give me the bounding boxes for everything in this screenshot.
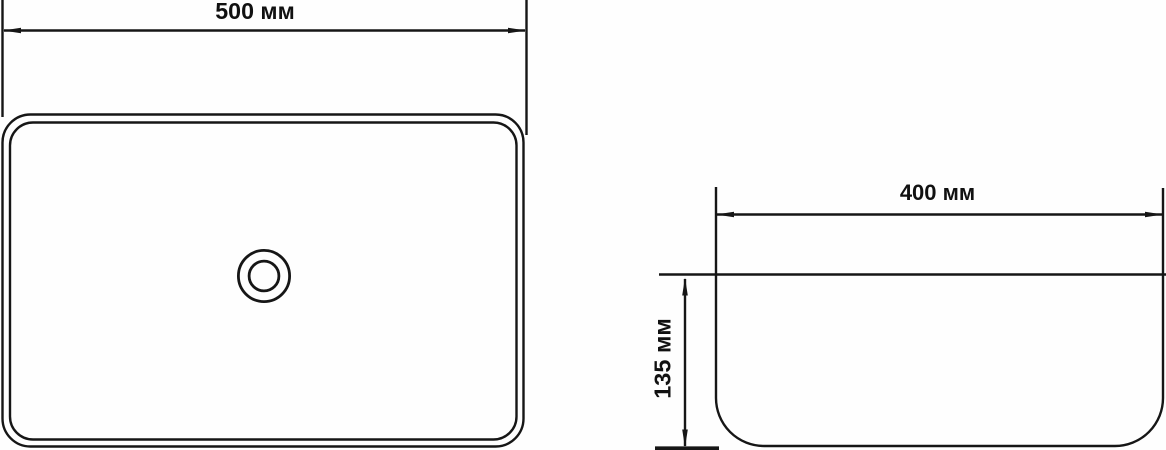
svg-text:135 мм: 135 мм	[650, 318, 676, 399]
svg-text:500 мм: 500 мм	[215, 0, 294, 24]
svg-text:400 мм: 400 мм	[900, 180, 975, 205]
